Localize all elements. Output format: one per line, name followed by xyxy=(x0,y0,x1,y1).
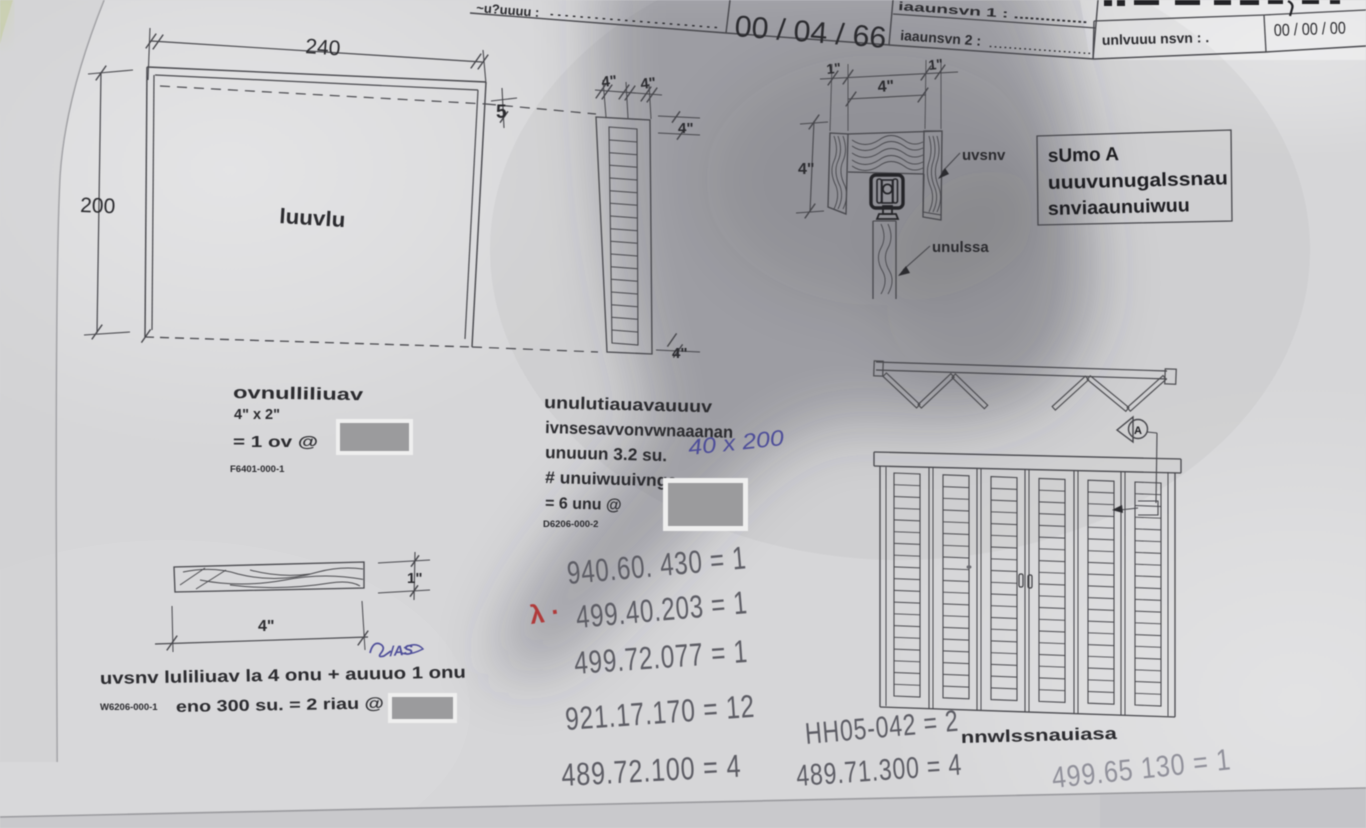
svg-text:4": 4" xyxy=(601,72,618,91)
svg-text:200: 200 xyxy=(80,194,116,218)
svg-text:4": 4" xyxy=(258,618,274,635)
svg-text:unulssa: unulssa xyxy=(932,239,989,256)
svg-text:4": 4" xyxy=(877,78,895,96)
svg-text:W6206-000-1: W6206-000-1 xyxy=(100,702,158,713)
svg-text:4" x 2": 4" x 2" xyxy=(234,407,280,423)
svg-text:luuvlu: luuvlu xyxy=(279,205,346,232)
svg-text:= 1 ov @: = 1 ov @ xyxy=(233,434,318,451)
svg-text:/AS: /AS xyxy=(388,641,414,659)
svg-text:4": 4" xyxy=(672,345,687,362)
svg-text:4": 4" xyxy=(798,161,814,178)
svg-text:uvsnv: uvsnv xyxy=(962,147,1006,164)
svg-text:λ ·: λ · xyxy=(528,596,562,630)
svg-text:# unuiwuuivnga: # unuiwuuivnga xyxy=(545,468,678,490)
svg-text:4": 4" xyxy=(678,120,693,137)
svg-text:240: 240 xyxy=(305,35,342,60)
svg-text:F6401-000-1: F6401-000-1 xyxy=(230,464,285,475)
svg-text:1": 1" xyxy=(407,570,422,587)
svg-text:A: A xyxy=(1134,425,1142,437)
svg-text:unlvuuu nsvn : .: unlvuuu nsvn : . xyxy=(1102,29,1210,48)
svg-text:= 6 unu @: = 6 unu @ xyxy=(545,495,622,514)
svg-text:unuuun 3.2 su.: unuuun 3.2 su. xyxy=(545,443,667,465)
svg-text:1": 1" xyxy=(928,56,944,73)
svg-text:eno 300 su. = 2 riau @: eno 300 su. = 2 riau @ xyxy=(176,695,384,716)
svg-text:00 / 00 / 00: 00 / 00 / 00 xyxy=(1273,18,1346,40)
svg-text:D6206-000-2: D6206-000-2 xyxy=(543,519,598,530)
svg-text:ovnulliliuav: ovnulliliuav xyxy=(233,383,364,404)
svg-text:sUmo A: sUmo A xyxy=(1048,144,1120,167)
svg-text:5: 5 xyxy=(496,102,507,123)
svg-text:1": 1" xyxy=(826,60,842,77)
svg-text:4": 4" xyxy=(640,74,657,93)
svg-text:snviaaunuiwuu: snviaaunuiwuu xyxy=(1048,195,1191,220)
